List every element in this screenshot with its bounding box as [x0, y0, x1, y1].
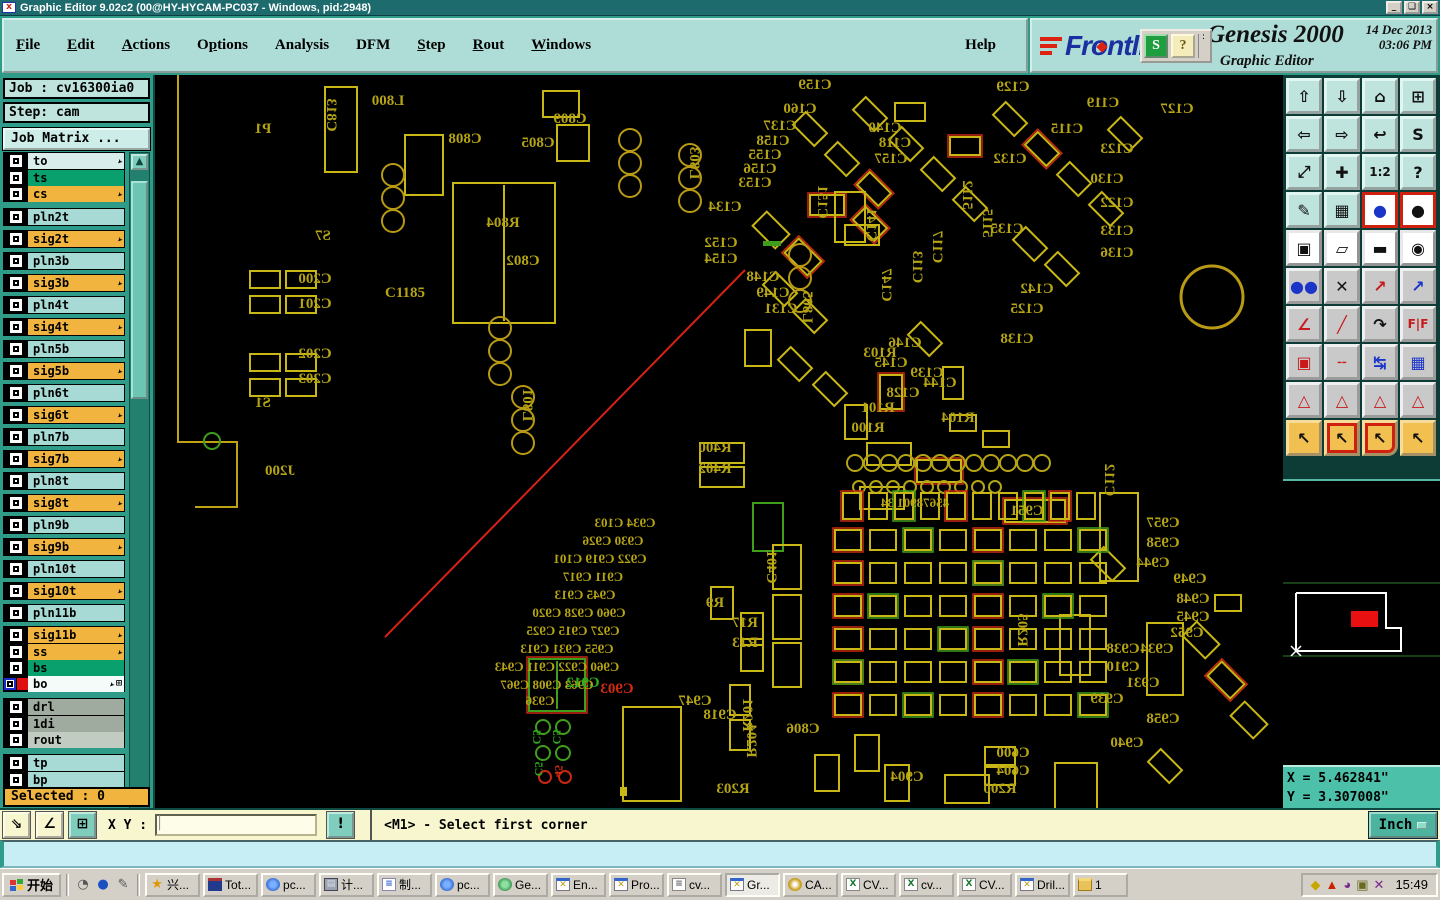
brand-panel: Frontlin Genesis 2000 14 Dec 2013 03:06 … — [1030, 18, 1438, 73]
layer-name: bp — [28, 772, 124, 788]
layer-checkbox-sig11b[interactable] — [10, 629, 22, 641]
svg-text:C147: C147 — [878, 268, 894, 302]
menu-bar: FileEditActionsOptionsAnalysisDFMStepRou… — [2, 18, 1028, 73]
layer-checkbox-pln3b[interactable] — [10, 255, 22, 267]
triangle-double-button[interactable]: △ — [1324, 382, 1360, 418]
triangle-wide-button[interactable]: △ — [1362, 382, 1398, 418]
layer-arrow-icon: ➤ — [111, 495, 126, 510]
layer-checkbox-pln5b[interactable] — [10, 343, 22, 355]
scroll-up-icon[interactable]: ▲ — [131, 154, 148, 170]
layer-row-sig5b[interactable]: sig5b➤ — [4, 363, 124, 379]
svg-text:L800: L800 — [372, 93, 405, 109]
svg-text:C118: C118 — [879, 135, 912, 151]
task-button-cv[interactable]: XCV... — [957, 873, 1012, 897]
app-icon: x — [2, 2, 16, 13]
doc-icon: ≡ — [382, 878, 396, 891]
note-icon: ≡ — [672, 878, 686, 891]
layer-name: sig2t➤ — [28, 231, 124, 247]
layer-row-sig11b[interactable]: sig11b➤ — [4, 627, 124, 643]
globe-icon — [440, 878, 454, 891]
calc-icon: ▤ — [324, 878, 338, 891]
copy-pad-button[interactable]: ▦ — [1400, 344, 1436, 380]
menu-item-rout[interactable]: Rout — [473, 37, 505, 54]
svg-text:C958: C958 — [1146, 535, 1179, 551]
angle-mode-icon[interactable]: ∠ — [36, 812, 63, 838]
svg-text:P1: P1 — [255, 121, 272, 137]
svg-text:C904: C904 — [890, 769, 924, 785]
layer-checkbox-sig8t[interactable] — [10, 497, 22, 509]
svg-text:45: 45 — [552, 765, 566, 777]
minimize-button[interactable]: _ — [1386, 1, 1402, 14]
time-text: 03:06 PM — [1366, 37, 1432, 52]
layer-arrow-icon: ➤ — [111, 451, 126, 466]
layer-checkbox-bo[interactable] — [4, 678, 16, 690]
help-bubble-icon[interactable]: ? — [1171, 34, 1195, 58]
svg-text:C918: C918 — [703, 707, 736, 723]
svg-text:C115: C115 — [1051, 121, 1084, 137]
layer-name: pln5b — [28, 341, 124, 357]
menu-row: FileEditActionsOptionsAnalysisDFMStepRou… — [0, 16, 1440, 75]
pcb-canvas[interactable]: C159C160C137C158C155C156C153C134C152C154… — [155, 75, 1283, 808]
scale-1-2-button[interactable]: 1:2 — [1362, 154, 1398, 190]
tray-triangle-icon[interactable]: ▲ — [1326, 877, 1339, 893]
svg-text:C129: C129 — [996, 79, 1029, 95]
layer-scrollbar[interactable]: ▲ ▽ — [129, 152, 150, 850]
layer-checkbox-bs[interactable] — [10, 662, 22, 674]
task-label: Tot... — [225, 878, 251, 892]
layer-arrow-icon: ➤ — [111, 275, 126, 290]
layer-panel: Job : cv16300ia0 Step: cam Job Matrix ..… — [0, 75, 155, 808]
layer-row-bs[interactable]: bs — [4, 659, 124, 675]
layer-checkbox-pln10t[interactable] — [10, 563, 22, 575]
layer-row-1di[interactable]: 1di — [4, 715, 124, 731]
svg-text:L805: L805 — [799, 291, 815, 324]
svg-text:C125: C125 — [1010, 301, 1043, 317]
scroll-thumb[interactable] — [131, 181, 148, 399]
net-compare-bw-button[interactable]: ● — [1400, 192, 1436, 228]
delete-object-button[interactable]: ✕ — [1324, 268, 1360, 304]
quad-view-button[interactable]: ⊞ — [1400, 78, 1436, 114]
layer-checkbox-drl[interactable] — [10, 701, 22, 713]
svg-text:C5: C5 — [532, 762, 546, 777]
svg-text:L803: L803 — [686, 147, 702, 180]
task-button-1[interactable]: 1 — [1073, 873, 1128, 897]
layer-checkbox-sig6t[interactable] — [10, 409, 22, 421]
layer-checkbox-pln8t[interactable] — [10, 475, 22, 487]
svg-text:C112: C112 — [1101, 464, 1117, 497]
zoom-out-y-button[interactable]: ⇩ — [1324, 78, 1360, 114]
title-bar[interactable]: x Graphic Editor 9.02c2 (00@HY-HYCAM-PC0… — [0, 0, 1440, 16]
tray-pencil-icon[interactable]: ◆ — [1311, 877, 1321, 893]
svg-text:R205: R205 — [1014, 613, 1030, 646]
move-vertex-button[interactable]: ↗ — [1362, 268, 1398, 304]
svg-text:R13: R13 — [732, 635, 758, 651]
layer-name: sig4t➤ — [28, 319, 124, 335]
svg-text:C122: C122 — [1100, 195, 1133, 211]
layer-checkbox-sig4t[interactable] — [10, 321, 22, 333]
svg-text:C401: C401 — [763, 550, 779, 583]
layer-row-cs[interactable]: cs➤ — [4, 185, 124, 201]
svg-text:C123: C123 — [1100, 141, 1133, 157]
menu-item-dfm[interactable]: DFM — [356, 37, 390, 54]
pan-right-button[interactable]: ⇨ — [1324, 116, 1360, 152]
layer-row-pln7b[interactable]: pln7b — [4, 429, 124, 445]
layer-row-sig9b[interactable]: sig9b➤ — [4, 539, 124, 555]
svg-text:C127: C127 — [1160, 101, 1194, 117]
layer-checkbox-rout[interactable] — [10, 734, 22, 746]
pad-swap-button[interactable]: ▣ — [1286, 344, 1322, 380]
layer-row-pln9b[interactable]: pln9b — [4, 517, 124, 533]
star-icon: ★ — [150, 878, 164, 891]
menu-item-edit[interactable]: Edit — [67, 37, 95, 54]
layer-name: pln7b — [28, 429, 124, 445]
pan-left-button[interactable]: ⇦ — [1286, 116, 1322, 152]
svg-text:C152: C152 — [704, 235, 737, 251]
tray-monitor-icon[interactable]: ▣ — [1356, 877, 1368, 893]
layer-row-to[interactable]: to➤ — [4, 153, 124, 169]
svg-text:C117: C117 — [929, 230, 945, 263]
menu-item-analysis[interactable]: Analysis — [275, 37, 329, 54]
layer-row-sig4t[interactable]: sig4t➤ — [4, 319, 124, 335]
svg-text:C5: C5 — [550, 730, 564, 745]
script-icon[interactable]: S — [1144, 34, 1168, 58]
layer-checkbox-bp[interactable] — [10, 774, 22, 786]
task-label: Pro... — [631, 878, 660, 892]
tray-ring-icon[interactable]: ◕ — [1343, 877, 1351, 893]
triangle-marked-button[interactable]: △ — [1400, 382, 1436, 418]
layer-row-sig3b[interactable]: sig3b➤ — [4, 275, 124, 291]
task-label: 制... — [399, 876, 421, 893]
notepad-icon[interactable]: ✎ — [114, 876, 132, 894]
layer-checkbox-1di[interactable] — [10, 718, 22, 730]
svg-text:C805: C805 — [521, 135, 554, 151]
selected-count: Selected : 0 — [3, 787, 150, 807]
layer-checkbox-pln6t[interactable] — [10, 387, 22, 399]
zoom-extents-button[interactable]: ⤢ — [1286, 154, 1322, 190]
what-is-button[interactable]: ? — [1400, 154, 1436, 190]
grid-snap-icon[interactable]: ⊞ — [69, 812, 96, 838]
mirror-object-button[interactable]: F|F — [1400, 306, 1436, 342]
svg-text:C131: C131 — [764, 301, 797, 317]
layer-checkbox-tp[interactable] — [10, 757, 22, 769]
svg-text:L801: L801 — [519, 389, 535, 422]
layer-row-rout[interactable]: rout — [4, 731, 124, 747]
task-button-gr[interactable]: ✕Gr... — [725, 873, 780, 897]
angle-measure-button[interactable]: ∠ — [1286, 306, 1322, 342]
layer-row-pln8t[interactable]: pln8t — [4, 473, 124, 489]
svg-text:C142: C142 — [1020, 281, 1053, 297]
svg-text:C200: C200 — [298, 271, 331, 287]
serpentine-view-button[interactable]: S — [1400, 116, 1436, 152]
task-label: cv... — [689, 878, 710, 892]
xy-label: X Y : — [108, 818, 147, 833]
svg-text:C113: C113 — [909, 251, 925, 284]
layer-row-sig6t[interactable]: sig6t➤ — [4, 407, 124, 423]
gap-measure-button[interactable]: ↹ — [1362, 344, 1398, 380]
layer-row-pln3b[interactable]: pln3b — [4, 253, 124, 269]
layer-checkbox-pln4t[interactable] — [10, 299, 22, 311]
task-button-dril[interactable]: ✕Dril... — [1015, 873, 1070, 897]
layer-name: rout — [28, 732, 124, 748]
layer-name: drl — [28, 699, 124, 715]
resize-mode-icon[interactable]: ⇘ — [3, 812, 30, 838]
svg-text:C157: C157 — [874, 151, 908, 167]
units-dropdown[interactable]: Inch — [1369, 812, 1437, 838]
task-button-pro[interactable]: ✕Pro... — [609, 873, 664, 897]
layer-row-pln10t[interactable]: pln10t — [4, 561, 124, 577]
xwin-icon: ✕ — [614, 878, 628, 891]
layer-row-tp[interactable]: tp — [4, 755, 124, 771]
layer-name: 1di — [28, 716, 124, 732]
svg-text:C140: C140 — [868, 120, 901, 136]
layer-row-pln11b[interactable]: pln11b — [4, 605, 124, 621]
date-time: 14 Dec 2013 03:06 PM — [1366, 22, 1432, 52]
xwin-icon: ✕ — [1020, 878, 1034, 891]
task-button-en[interactable]: ✕En... — [551, 873, 606, 897]
svg-text:C948: C948 — [1176, 591, 1209, 607]
task-button-[interactable]: ≡制... — [377, 873, 432, 897]
pad-circle-button[interactable]: ◉ — [1400, 230, 1436, 266]
svg-text:R17: R17 — [732, 615, 758, 631]
menu-item-actions[interactable]: Actions — [122, 37, 170, 54]
task-label: CV... — [979, 878, 1005, 892]
layer-row-ts[interactable]: ts — [4, 169, 124, 185]
svg-text:C809: C809 — [553, 111, 586, 127]
select-single-button[interactable]: ↖ — [1286, 420, 1322, 456]
toolbar-grip[interactable]: : — [1198, 34, 1208, 58]
menu-item-file[interactable]: File — [16, 37, 40, 54]
os-taskbar: 开始 ◔●✎ ★兴...Tot...pc...▤计...≡制...pc...Ge… — [0, 868, 1440, 900]
layer-arrow-icon: ➤ — [111, 644, 126, 659]
svg-text:C944: C944 — [1136, 555, 1170, 571]
layer-checkbox-ss[interactable] — [10, 646, 22, 658]
svg-text:C128: C128 — [886, 385, 919, 401]
task-label: CA... — [805, 878, 832, 892]
svg-text:C806: C806 — [786, 721, 820, 737]
menu-item-help[interactable]: Help — [965, 37, 996, 54]
quick-launch: ◔●✎ — [74, 876, 132, 894]
svg-text:C949: C949 — [1173, 571, 1206, 587]
reshape-button[interactable]: ▱ — [1324, 230, 1360, 266]
layer-checkbox-pln2t[interactable] — [10, 211, 22, 223]
layer-row-sig8t[interactable]: sig8t➤ — [4, 495, 124, 511]
measure-ruler-button[interactable]: ▬ — [1362, 230, 1398, 266]
svg-text:C911 C917: C911 C917 — [562, 569, 623, 584]
layer-arrow-icon: ➤ — [111, 186, 126, 201]
svg-text:C960 C922 C911 C943: C960 C922 C911 C943 — [494, 659, 619, 674]
step-field[interactable]: Step: cam — [3, 102, 150, 123]
layer-name: pln8t — [28, 473, 124, 489]
layer-name: cs➤ — [28, 186, 124, 202]
select-frame-button[interactable]: ↖ — [1324, 420, 1360, 456]
invert-view-button[interactable]: ▣ — [1286, 230, 1322, 266]
task-button-[interactable]: ★兴... — [145, 873, 200, 897]
globe-icon[interactable]: ● — [94, 876, 112, 894]
task-buttons: ★兴...Tot...pc...▤计...≡制...pc...Ge...✕En.… — [145, 873, 1128, 897]
svg-text:C939: C939 — [1090, 691, 1123, 707]
layer-row-pln2t[interactable]: pln2t — [4, 209, 124, 225]
sphere-icon — [498, 878, 512, 891]
layer-checkbox-sig9b[interactable] — [10, 541, 22, 553]
layer-checkbox-ts[interactable] — [10, 172, 22, 184]
svg-text:5115: 5115 — [979, 208, 995, 237]
layer-row-sig2t[interactable]: sig2t➤ — [4, 231, 124, 247]
svg-text:C934: C934 — [1140, 641, 1174, 657]
task-button-cv[interactable]: XCV... — [841, 873, 896, 897]
setup-tools-button[interactable]: ✎ — [1286, 192, 1322, 228]
layer-name: pln2t — [28, 209, 124, 225]
svg-text:S1: S1 — [255, 395, 271, 411]
task-button-ca[interactable]: CA... — [783, 873, 838, 897]
clock: 15:49 — [1395, 877, 1428, 892]
layer-name: to➤ — [28, 153, 124, 169]
tray-x-tool-icon[interactable]: ✕ — [1374, 877, 1385, 893]
layer-checkbox-pln9b[interactable] — [10, 519, 22, 531]
active-layer-swatch — [17, 678, 28, 690]
layer-row-pln4t[interactable]: pln4t — [4, 297, 124, 313]
overview-minimap[interactable] — [1283, 479, 1440, 765]
select-net-button[interactable]: ↖ — [1400, 420, 1436, 456]
excel-icon: X — [962, 878, 976, 891]
triangle-single-button[interactable]: △ — [1286, 382, 1322, 418]
layer-name: pln11b — [28, 605, 124, 621]
date-text: 14 Dec 2013 — [1366, 22, 1432, 37]
grid-toggle-button[interactable]: ▦ — [1324, 192, 1360, 228]
xwin-icon: ✕ — [556, 878, 570, 891]
layer-row-bp[interactable]: bp — [4, 771, 124, 787]
alert-icon[interactable]: ! — [327, 812, 354, 838]
tool-panel: ⇧⇩⌂⊞⇦⇨↩S⤢✚1:2?✎▦●●▣▱▬◉●●✕↗↗∠╱↷F|F▣╌↹▦△△△… — [1283, 75, 1440, 808]
select-polygon-button[interactable]: ↖ — [1362, 420, 1398, 456]
graphic-editor-window: x Graphic Editor 9.02c2 (00@HY-HYCAM-PC0… — [0, 0, 1440, 900]
svg-text:C945 C913: C945 C913 — [554, 587, 616, 602]
layer-name: bo➤⊞ — [28, 676, 124, 692]
restore-button[interactable]: ❏ — [1404, 1, 1420, 14]
svg-text:C201: C201 — [298, 296, 331, 312]
svg-text:C912: C912 — [566, 675, 599, 691]
svg-text:C922 C919 C101: C922 C919 C101 — [553, 551, 646, 566]
task-label: 兴... — [167, 876, 189, 893]
task-label: pc... — [457, 878, 480, 892]
layer-checkbox-pln7b[interactable] — [10, 431, 22, 443]
layer-name: pln9b — [28, 517, 124, 533]
layer-checkbox-to[interactable] — [10, 155, 22, 167]
svg-text:C604: C604 — [996, 763, 1030, 779]
net-endpoints-button[interactable]: ●● — [1286, 268, 1322, 304]
task-label: En... — [573, 878, 598, 892]
layer-checkbox-sig3b[interactable] — [10, 277, 22, 289]
layer-row-pln6t[interactable]: pln6t — [4, 385, 124, 401]
svg-text:C808: C808 — [448, 131, 481, 147]
cursor-coordinates: X = 5.462841" Y = 3.307008" — [1283, 765, 1440, 808]
prompt-message: <M1> - Select first corner — [370, 810, 1369, 840]
layer-row-ss[interactable]: ss➤ — [4, 643, 124, 659]
svg-text:C148: C148 — [746, 269, 779, 285]
task-label: pc... — [283, 878, 306, 892]
svg-text:C952: C952 — [1170, 625, 1203, 641]
layer-name: pln4t — [28, 297, 124, 313]
coord-y: Y = 3.307008" — [1287, 788, 1436, 807]
task-button-cv[interactable]: ≡cv... — [667, 873, 722, 897]
task-button-cv[interactable]: Xcv... — [899, 873, 954, 897]
menu-item-windows[interactable]: Windows — [531, 37, 591, 54]
layer-name: tp — [28, 755, 124, 771]
layer-row-pln5b[interactable]: pln5b — [4, 341, 124, 357]
rotate-object-button[interactable]: ↷ — [1362, 306, 1398, 342]
task-button-pc[interactable]: pc... — [261, 873, 316, 897]
net-compare-color-button[interactable]: ● — [1362, 192, 1398, 228]
svg-text:C951: C951 — [1010, 503, 1043, 519]
svg-text:C927 C915 C925: C927 C915 C925 — [526, 623, 620, 638]
svg-text:C119: C119 — [1087, 95, 1120, 111]
layer-name: sig7b➤ — [28, 451, 124, 467]
xy-input[interactable]: ▏ — [155, 814, 317, 836]
clock-icon[interactable]: ◔ — [74, 876, 92, 894]
svg-text:R204: R204 — [743, 724, 759, 758]
svg-text:C600: C600 — [996, 745, 1029, 761]
status-bar: ⇘ ∠ ⊞ X Y : ▏ ! <M1> - Select first corn… — [0, 808, 1440, 840]
layer-row-sig7b[interactable]: sig7b➤ — [4, 451, 124, 467]
svg-text:C1185: C1185 — [385, 285, 425, 301]
copy-vertex-button[interactable]: ↗ — [1400, 268, 1436, 304]
svg-text:C134: C134 — [708, 199, 742, 215]
svg-text:C203: C203 — [298, 371, 331, 387]
layer-checkbox-cs[interactable] — [10, 188, 22, 200]
layer-checkbox-sig10t[interactable] — [10, 585, 22, 597]
layer-checkbox-sig2t[interactable] — [10, 233, 22, 245]
layer-row-drl[interactable]: drl — [4, 699, 124, 715]
window-title: Graphic Editor 9.02c2 (00@HY-HYCAM-PC037… — [20, 2, 1386, 14]
task-label: Dril... — [1037, 878, 1065, 892]
menu-item-step[interactable]: Step — [417, 37, 445, 54]
layer-name: pln6t — [28, 385, 124, 401]
zoom-center-button[interactable]: ✚ — [1324, 154, 1360, 190]
task-button-ge[interactable]: Ge... — [493, 873, 548, 897]
task-button-pc[interactable]: pc... — [435, 873, 490, 897]
line-stretch-button[interactable]: ╌ — [1324, 344, 1360, 380]
layer-checkbox-sig5b[interactable] — [10, 365, 22, 377]
home-view-button[interactable]: ⌂ — [1362, 78, 1398, 114]
previous-view-button[interactable]: ↩ — [1362, 116, 1398, 152]
layer-name: sig5b➤ — [28, 363, 124, 379]
layer-row-bo[interactable]: bo➤⊞ — [4, 675, 124, 691]
start-button[interactable]: 开始 — [2, 873, 61, 897]
slant-line-button[interactable]: ╱ — [1324, 306, 1360, 342]
svg-text:R100: R100 — [851, 420, 884, 436]
job-matrix-button[interactable]: Job Matrix ... — [3, 128, 150, 150]
svg-text:C940: C940 — [1110, 735, 1143, 751]
layer-row-sig10t[interactable]: sig10t➤ — [4, 583, 124, 599]
close-button[interactable]: × — [1422, 1, 1438, 14]
task-button-[interactable]: ▤计... — [319, 873, 374, 897]
svg-text:C938: C938 — [1106, 641, 1139, 657]
product-name: Genesis 2000 — [1207, 21, 1344, 49]
floppy-icon — [208, 878, 222, 891]
svg-text:45678901 34: 45678901 34 — [880, 495, 949, 510]
layer-checkbox-pln11b[interactable] — [10, 607, 22, 619]
svg-text:C202: C202 — [298, 346, 331, 362]
units-toggle-icon — [1417, 822, 1427, 829]
layer-name: sig6t➤ — [28, 407, 124, 423]
svg-text:R9: R9 — [706, 595, 724, 611]
menu-item-options[interactable]: Options — [197, 37, 248, 54]
svg-text:R400: R400 — [698, 440, 731, 456]
zoom-in-y-button[interactable]: ⇧ — [1286, 78, 1322, 114]
job-field[interactable]: Job : cv16300ia0 — [3, 78, 150, 99]
task-button-tot[interactable]: Tot... — [203, 873, 258, 897]
layer-checkbox-sig7b[interactable] — [10, 453, 22, 465]
task-label: 1 — [1095, 878, 1102, 892]
